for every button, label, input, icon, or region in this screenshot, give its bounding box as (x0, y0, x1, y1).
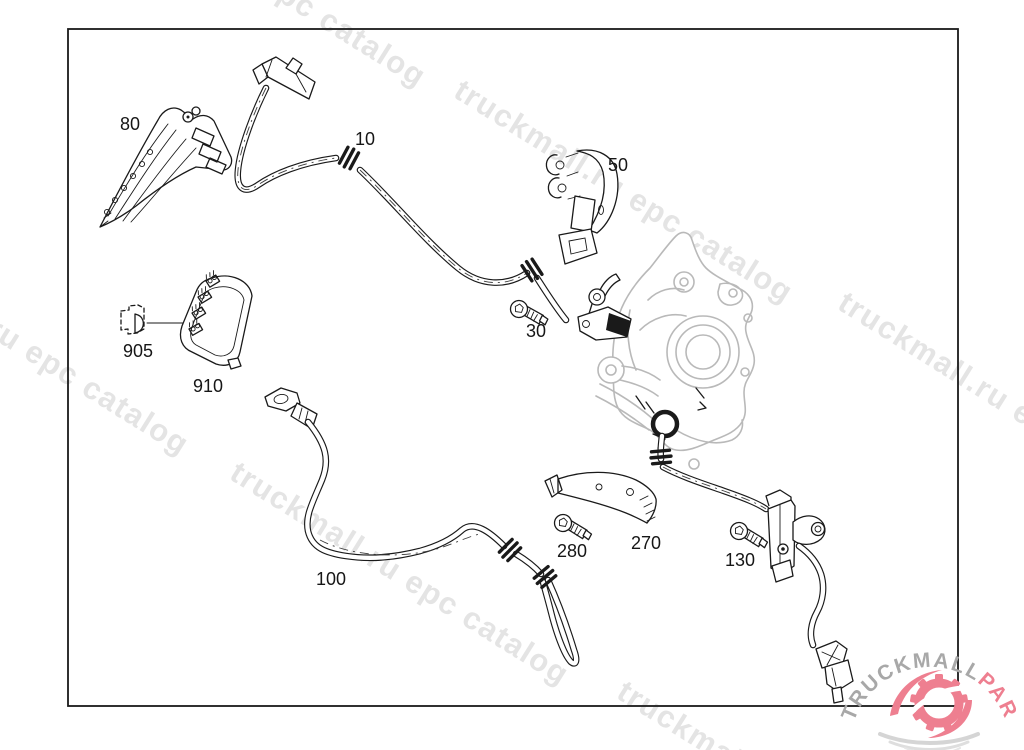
part-label-905: 905 (123, 341, 153, 361)
part-label-280: 280 (557, 541, 587, 561)
watermark-layer: truckmall.ru epc catalog truckmall.ru ep… (0, 0, 1024, 750)
part-label-30: 30 (526, 321, 546, 341)
gear-icon (890, 670, 972, 738)
screw-280-drawing (553, 513, 594, 540)
screw-130-drawing (729, 521, 770, 548)
exploded-parts-diagram: truckmall.ru epc catalog truckmall.ru ep… (0, 0, 1024, 750)
watermark-text: truckmall.ru epc catalog (448, 72, 800, 310)
part-label-100: 100 (316, 569, 346, 589)
part-label-10: 10 (355, 129, 375, 149)
sensor-cable-10-drawing (238, 57, 631, 340)
watermark-text: truckmall.ru epc catalog (0, 224, 196, 462)
watermark-text: truckmall.ru epc catalog (224, 454, 576, 692)
watermark-text: truckmall.ru epc catalog (832, 284, 1024, 522)
part-label-910: 910 (193, 376, 223, 396)
connector-905-drawing (121, 305, 190, 334)
parts-diagram-page: truckmall.ru epc catalog truckmall.ru ep… (0, 0, 1024, 750)
part-label-270: 270 (631, 533, 661, 553)
control-unit-910-drawing (180, 270, 252, 369)
part-label-130: 130 (725, 550, 755, 570)
part-label-80: 80 (120, 114, 140, 134)
part-label-50: 50 (608, 155, 628, 175)
